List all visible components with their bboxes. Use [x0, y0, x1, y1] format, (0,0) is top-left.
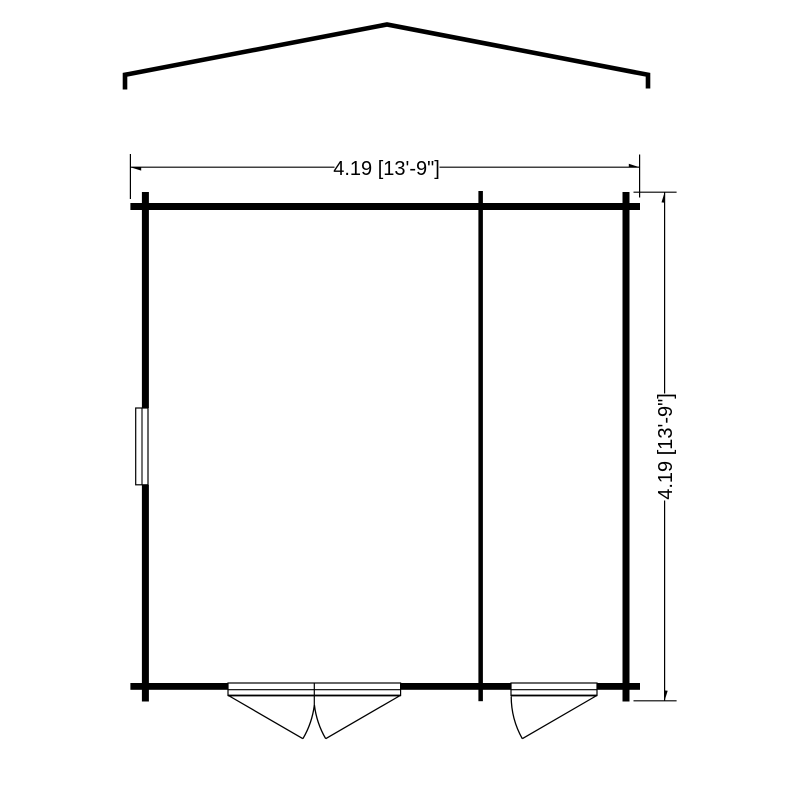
- svg-text:4.19 [13'-9"]: 4.19 [13'-9"]: [333, 158, 440, 180]
- svg-text:4.19 [13'-9"]: 4.19 [13'-9"]: [655, 393, 677, 500]
